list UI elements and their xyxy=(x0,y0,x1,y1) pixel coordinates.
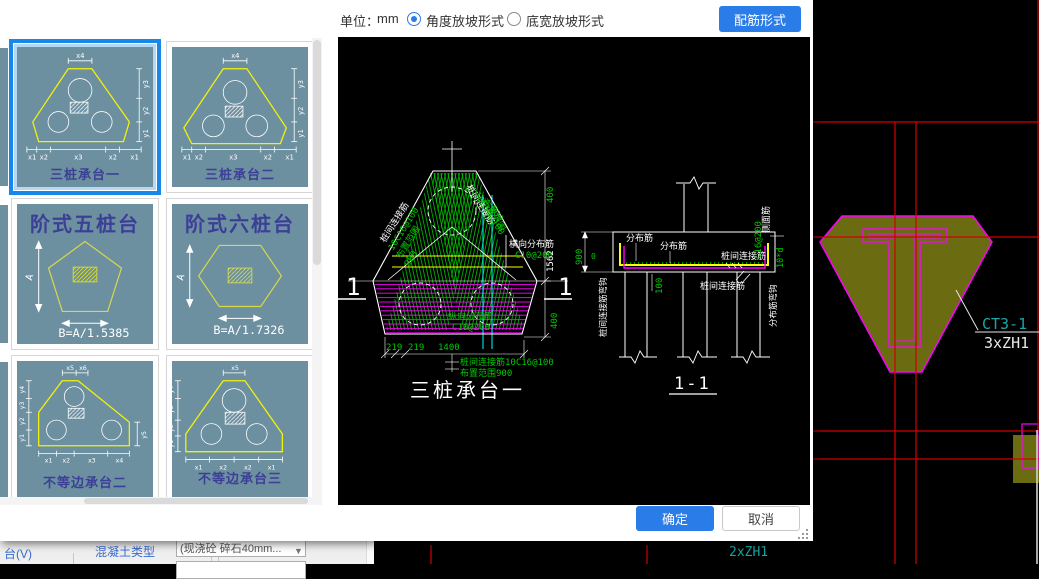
tile-three-pile-cap-2[interactable]: x4 y3 y2 y1 x1 x2 x3 x2 x1 三桩承台二 xyxy=(166,41,314,193)
dim-label: y1 xyxy=(297,129,305,137)
ok-button[interactable]: 确定 xyxy=(636,506,714,531)
conn-rebar-label-2: 桩间连接筋 xyxy=(700,280,745,292)
depth-900-label: 900 xyxy=(575,249,585,265)
transverse-rebar-label: 横向分布筋 xyxy=(509,238,554,250)
dim-label: x1 xyxy=(28,153,36,161)
rebar-form-button[interactable]: 配筋形式 xyxy=(719,6,801,32)
column-symbol xyxy=(70,102,88,113)
pile-cap-picker-dialog: 单位： mm 角度放坡形式 底宽放坡形式 配筋形式 xyxy=(0,0,813,541)
tile-irregular-cap-3[interactable]: x5 y4 y3 y2 y1 x1 x2 x2 x1 不等边承台三 xyxy=(166,355,314,505)
column-symbol xyxy=(68,408,84,418)
tile-image: x4 y3 y2 y1 x1 x2 x3 x2 x1 三桩承台二 xyxy=(172,47,308,187)
radio-bottom-width-slope[interactable] xyxy=(507,12,521,26)
dim-label: y1 xyxy=(172,440,175,448)
dim-label: x5 xyxy=(231,364,239,372)
dim-219-a: 219 xyxy=(386,343,402,353)
background-menu-text: 台(V) xyxy=(4,545,32,562)
dim-label: y3 xyxy=(18,401,26,409)
column-symbol xyxy=(228,268,252,283)
tile-image: x5 x6 y4 y3 y2 y1 y5 x1 x2 x3 x4 xyxy=(17,361,153,501)
dim-label: x4 xyxy=(76,52,84,60)
column-symbol xyxy=(225,412,245,424)
dim-label: x3 xyxy=(74,153,82,161)
screen: CT3-1 3xZH1 2xZH1 台(V) 混凝土类型 (现浇砼 碎石40mm… xyxy=(0,0,1039,564)
dim-label: x4 xyxy=(231,52,239,60)
table-divider xyxy=(73,553,74,564)
dim-label: y4 xyxy=(172,386,175,394)
tile-image: 阶式六桩台 A B=A/1.7326 xyxy=(172,204,308,344)
dim-label: x1 xyxy=(285,153,293,161)
tile-caption: 三桩承台二 xyxy=(172,164,308,183)
tile-stepped-six-pile[interactable]: 阶式六桩台 A B=A/1.7326 xyxy=(166,198,314,350)
tile-image: x5 y4 y3 y2 y1 x1 x2 x2 x1 不等边承台三 xyxy=(172,361,308,501)
dialog-toolbar: 单位： mm 角度放坡形式 底宽放坡形式 配筋形式 xyxy=(0,0,813,37)
dim-label: x2 xyxy=(264,153,272,161)
dim-label: x3 xyxy=(88,457,96,465)
thumbnail-panel: x4 y3 y2 y1 x1 x2 x3 x2 x1 三桩承台一 xyxy=(0,38,322,505)
dim-label: y2 xyxy=(297,107,305,115)
dim-label: y2 xyxy=(142,107,150,115)
dim-label: x2 xyxy=(195,153,203,161)
dim-label: x2 xyxy=(109,153,117,161)
dim-a-label: A xyxy=(175,273,187,282)
tile-caption: 三桩承台一 xyxy=(17,164,153,183)
dim-219-b: 219 xyxy=(408,343,424,353)
scrollbar-thumb[interactable] xyxy=(313,40,321,265)
dim-label: y5 xyxy=(140,431,148,439)
dim-label: x4 xyxy=(116,457,124,465)
background-scrollbar[interactable] xyxy=(366,541,374,564)
dim-label: y3 xyxy=(142,80,150,88)
dist-rebar-label-1: 分布筋 xyxy=(626,232,653,244)
pile-outlines xyxy=(619,272,770,363)
conn-hook-label: 桩间连接筋弯钩 xyxy=(598,277,609,337)
tile-caption: 不等边承台二 xyxy=(17,472,153,491)
dropdown-arrow-icon[interactable]: ▼ xyxy=(294,546,303,556)
dim-label: y3 xyxy=(172,405,175,413)
longitudinal-rebar-label: 纵向分布筋 xyxy=(448,310,493,322)
section-title: 1-1 xyxy=(674,374,711,394)
concrete-type-label: 混凝土类型 xyxy=(95,543,155,560)
scrollbar-thumb[interactable] xyxy=(84,498,308,504)
dim-1562: 1562 xyxy=(546,250,556,272)
tile-irregular-cap-2[interactable]: x5 x6 y4 y3 y2 y1 y5 x1 x2 x3 x4 xyxy=(11,355,159,505)
radio-bottom-width-slope-label[interactable]: 底宽放坡形式 xyxy=(526,11,604,30)
dim-label: x2 xyxy=(40,153,48,161)
longitudinal-rebar-spec: C10@200 xyxy=(452,323,490,333)
dim-label: x6 xyxy=(79,364,87,372)
partial-tile[interactable] xyxy=(0,48,8,186)
dim-label: y1 xyxy=(18,434,26,442)
dim-label: x5 xyxy=(66,364,74,372)
cad-cap-id-label: CT3-1 xyxy=(982,315,1027,333)
tile-stepped-five-pile[interactable]: 阶式五桩台 A B=A/1.5385 xyxy=(11,198,159,350)
dim-label: x1 xyxy=(183,153,191,161)
formula-label: B=A/1.5385 xyxy=(58,326,129,340)
dim-a-label: A xyxy=(24,273,36,282)
dim-400-top: 400 xyxy=(546,187,556,203)
tile-three-pile-cap-1[interactable]: x4 y3 y2 y1 x1 x2 x3 x2 x1 三桩承台一 xyxy=(9,39,161,195)
dist-rebar-label-2: 分布筋 xyxy=(660,240,687,252)
tile-image: 阶式五桩台 A B=A/1.5385 xyxy=(17,204,153,344)
dim-label: y2 xyxy=(18,417,26,425)
resize-grip-icon[interactable] xyxy=(797,528,809,540)
dim-label: y1 xyxy=(142,129,150,137)
pentagon-cap-drawing: A B=A/1.5385 xyxy=(17,204,153,344)
hexagon-cap-drawing: A B=A/1.7326 xyxy=(172,204,308,344)
cad-pile-count-label: 3xZH1 xyxy=(984,334,1029,352)
side-rebar-spec: C16@200 xyxy=(754,221,764,259)
cad-pile-count-label-2: 2xZH1 xyxy=(729,545,768,560)
dim-label: y4 xyxy=(18,386,26,394)
dist-hook-label: 分布筋弯钩 xyxy=(768,284,779,327)
formula-label: B=A/1.7326 xyxy=(213,323,284,337)
unit-value: mm xyxy=(377,11,399,26)
dim-400-bottom: 400 xyxy=(550,313,560,329)
section-mark-left: 1 xyxy=(346,273,360,301)
radio-angle-slope[interactable] xyxy=(407,12,421,26)
cancel-button[interactable]: 取消 xyxy=(722,506,800,531)
section-mark-right: 1 xyxy=(558,273,572,301)
column-symbol xyxy=(73,267,97,282)
tile-image: x4 y3 y2 y1 x1 x2 x3 x2 x1 三桩承台一 xyxy=(17,47,153,187)
dim-0-label: 0 xyxy=(591,252,596,261)
partial-tile[interactable] xyxy=(0,205,8,343)
radio-angle-slope-label[interactable]: 角度放坡形式 xyxy=(426,11,504,30)
unit-label: 单位： xyxy=(340,11,379,30)
plan-title: 三桩承台一 xyxy=(410,378,525,402)
dim-label: x3 xyxy=(229,153,237,161)
dim-1400: 1400 xyxy=(438,343,460,353)
dim-label: x2 xyxy=(62,457,70,465)
leader-conn-spec: 桩间连接筋10C16@100 xyxy=(460,356,554,368)
dim-label: x1 xyxy=(130,153,138,161)
cap-detail-preview: 1 1 桩间连接筋 10C16@100 布置范围 900 桩间连接筋 10C16… xyxy=(338,37,810,505)
dim-label: y3 xyxy=(297,80,305,88)
partial-tile[interactable] xyxy=(0,362,8,497)
cap-detail-drawing: 1 1 桩间连接筋 10C16@100 布置范围 900 桩间连接筋 10C16… xyxy=(338,37,810,505)
column-symbol xyxy=(225,106,243,117)
tile-caption: 不等边承台三 xyxy=(172,468,308,487)
dim-label: x1 xyxy=(45,457,53,465)
hook-length-label: 10*d xyxy=(776,248,786,268)
dim-100-label: 100 xyxy=(655,278,665,294)
dim-label: y2 xyxy=(172,424,175,432)
